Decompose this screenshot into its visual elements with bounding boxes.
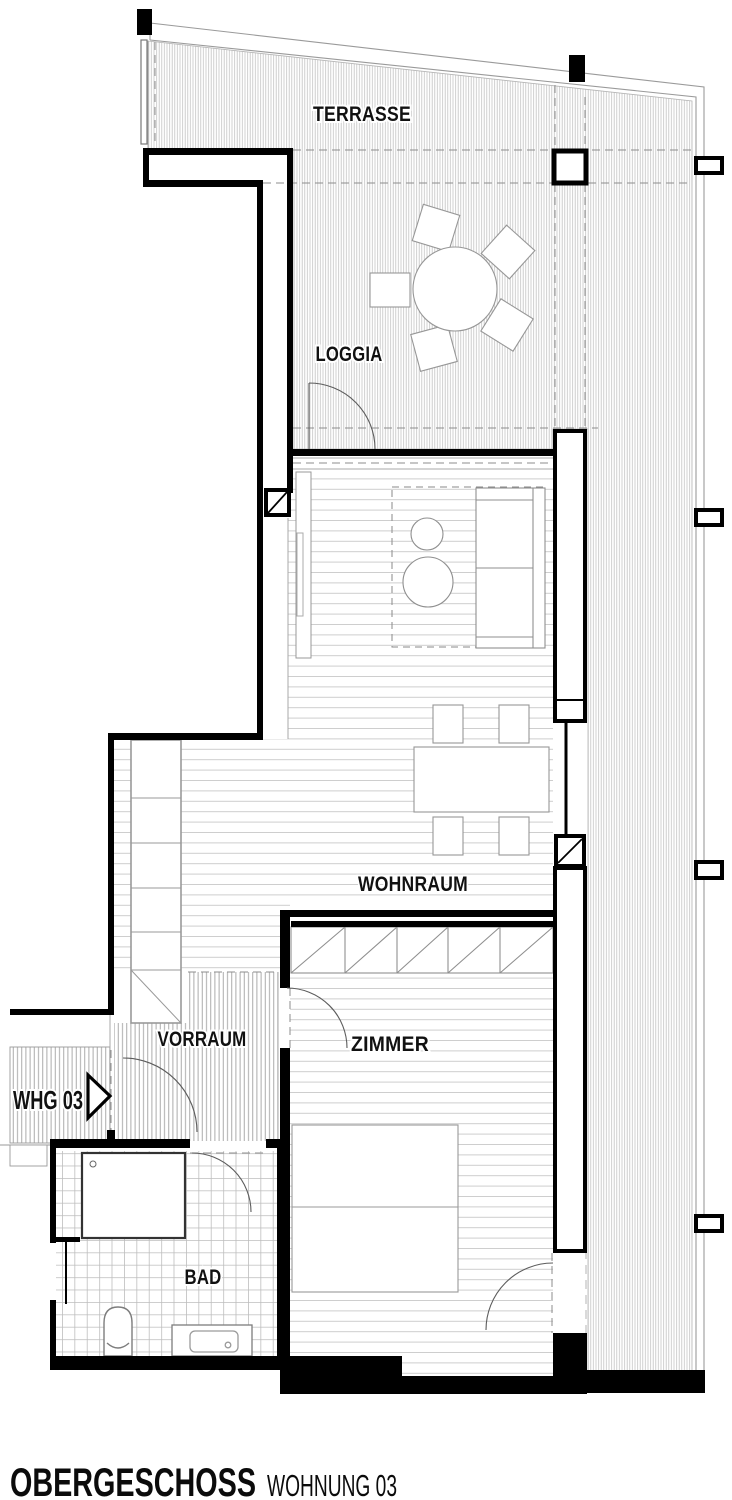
sofa bbox=[476, 488, 545, 648]
wall-zimmer-west-upper bbox=[280, 910, 290, 988]
room-label-vorraum: VORRAUM bbox=[158, 1028, 247, 1051]
dining-table bbox=[414, 747, 549, 812]
wall-outer-left bbox=[108, 733, 114, 1015]
shower-drain bbox=[90, 1161, 96, 1167]
wardrobe bbox=[291, 927, 553, 973]
railing-post bbox=[569, 55, 585, 82]
wall-shaft-left bbox=[257, 180, 263, 739]
wall-bottom-zimmer-corner bbox=[280, 1356, 402, 1394]
pier-upper bbox=[555, 431, 585, 721]
room-label-loggia: LOGGIA bbox=[316, 343, 383, 366]
wall-zimmer-north bbox=[291, 921, 553, 927]
terrace-post-square bbox=[554, 151, 586, 183]
wall-bottom-zimmer-band bbox=[400, 1376, 553, 1394]
wall-wohnraum-south bbox=[280, 910, 553, 917]
sheet-subtitle: WOHNUNG 03 bbox=[267, 1468, 397, 1500]
dining-chair bbox=[499, 817, 529, 855]
facade-tie bbox=[696, 510, 722, 525]
toilet bbox=[104, 1307, 132, 1356]
sideboard bbox=[296, 472, 311, 658]
sink-counter bbox=[172, 1325, 252, 1356]
room-label-bad: BAD bbox=[185, 1266, 222, 1289]
floor-plan-svg: TERRASSE LOGGIA WOHNRAUM VORRAUM ZIMMER … bbox=[0, 0, 732, 1500]
dining-chair bbox=[433, 817, 463, 855]
wall-top-inner bbox=[143, 180, 263, 187]
dining-chair bbox=[499, 705, 529, 743]
facade-tie bbox=[696, 158, 722, 173]
railing-panel bbox=[141, 40, 147, 144]
floor-plan-sheet: TERRASSE LOGGIA WOHNRAUM VORRAUM ZIMMER … bbox=[0, 0, 732, 1500]
terrace-chair bbox=[370, 273, 410, 307]
facade-tie bbox=[696, 1216, 722, 1231]
terrace-round-table bbox=[413, 247, 497, 331]
wall-outer-step bbox=[108, 733, 263, 740]
sheet-title: OBERGESCHOSS bbox=[10, 1461, 256, 1500]
wall-loggia-top bbox=[143, 148, 293, 155]
pier-lower bbox=[555, 868, 585, 1251]
facade-tie bbox=[696, 862, 722, 878]
wall-bottom-post bbox=[553, 1333, 587, 1394]
wall-loggia-left bbox=[287, 148, 293, 493]
room-label-zimmer: ZIMMER bbox=[351, 1033, 429, 1056]
shower bbox=[82, 1153, 185, 1238]
wall-strip-bottom bbox=[585, 1370, 705, 1393]
wall-bad-top bbox=[50, 1139, 190, 1148]
railing-post bbox=[137, 9, 152, 35]
column-marker bbox=[556, 836, 584, 866]
dining-chair bbox=[433, 705, 463, 743]
bed bbox=[292, 1125, 458, 1292]
wall-loggia-bottom bbox=[291, 449, 553, 456]
built-in-closet bbox=[131, 740, 181, 1023]
wall-bottom-bad bbox=[50, 1356, 283, 1370]
entry-label: WHG 03 bbox=[13, 1085, 83, 1115]
wall-outer-bottom-left bbox=[10, 1009, 114, 1015]
room-label-terrasse: TERRASSE bbox=[313, 103, 411, 126]
room-label-wohnraum: WOHNRAUM bbox=[358, 873, 468, 896]
wall-bad-right bbox=[277, 1141, 290, 1358]
column-marker bbox=[266, 490, 289, 515]
wall-bad-left-upper bbox=[50, 1139, 56, 1243]
wall-bad-left-lower bbox=[50, 1300, 56, 1360]
wall-bad-left-stub bbox=[50, 1237, 80, 1242]
